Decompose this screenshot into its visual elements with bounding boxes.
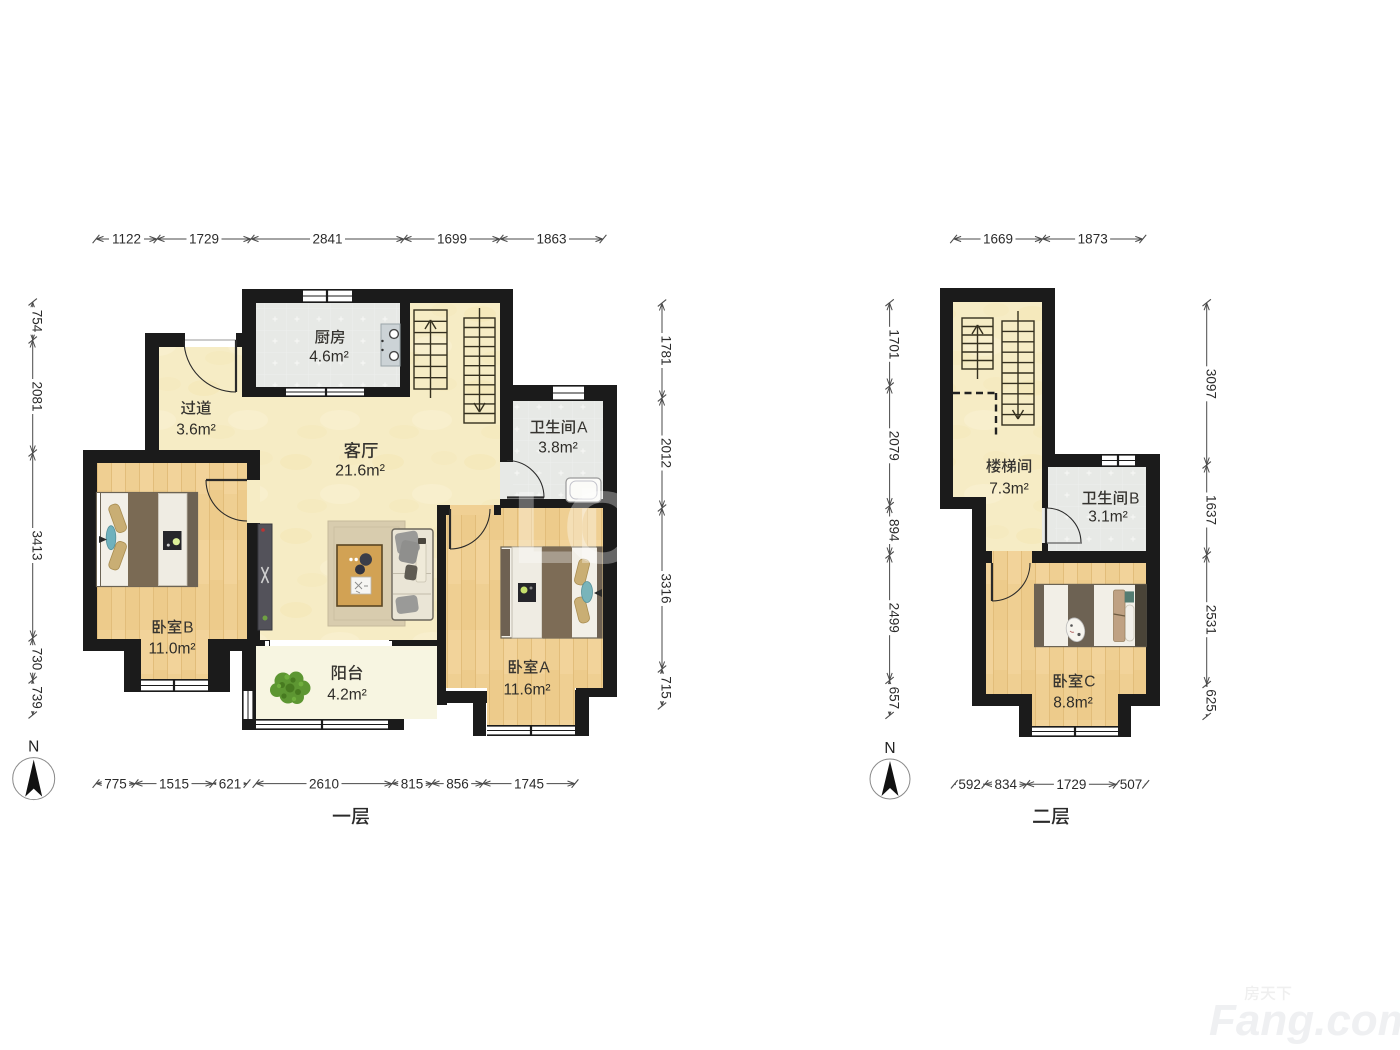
svg-text:C: C [1084, 674, 1095, 691]
svg-text:Fang.com: Fang.com [1209, 996, 1400, 1045]
svg-text:1863: 1863 [536, 232, 566, 247]
svg-text:1873: 1873 [1078, 232, 1108, 247]
svg-text:B: B [183, 620, 193, 637]
svg-text:657: 657 [886, 687, 901, 710]
svg-text:592: 592 [958, 777, 981, 792]
svg-text:621: 621 [219, 776, 242, 791]
svg-text:3316: 3316 [659, 573, 674, 603]
svg-text:21.6m²: 21.6m² [335, 462, 385, 479]
svg-text:1745: 1745 [514, 776, 544, 791]
svg-text:3.6m²: 3.6m² [176, 422, 216, 439]
svg-text:A: A [539, 660, 550, 677]
svg-text:1701: 1701 [886, 329, 901, 359]
svg-text:C: C [563, 470, 637, 585]
svg-text:507: 507 [1120, 777, 1143, 792]
svg-text:739: 739 [29, 686, 44, 709]
svg-text:11.0m²: 11.0m² [148, 641, 195, 658]
svg-text:3097: 3097 [1203, 369, 1218, 399]
svg-text:754: 754 [29, 310, 44, 333]
svg-text:11.6m²: 11.6m² [503, 682, 550, 699]
svg-text:1637: 1637 [1203, 495, 1218, 525]
svg-text:1122: 1122 [112, 232, 141, 247]
svg-text:1781: 1781 [659, 335, 674, 365]
svg-text:2610: 2610 [309, 776, 339, 791]
svg-text:N: N [28, 739, 39, 756]
svg-text:715: 715 [659, 676, 674, 699]
svg-text:1515: 1515 [159, 776, 189, 791]
svg-text:3.8m²: 3.8m² [538, 440, 578, 457]
svg-text:4.6m²: 4.6m² [309, 349, 349, 366]
svg-text:2499: 2499 [886, 603, 901, 633]
svg-text:1669: 1669 [983, 232, 1013, 247]
svg-text:775: 775 [104, 776, 127, 791]
svg-text:1729: 1729 [1056, 777, 1086, 792]
svg-text:625: 625 [1203, 689, 1218, 712]
svg-text:N: N [884, 740, 895, 757]
svg-text:894: 894 [886, 519, 901, 542]
svg-text:2012: 2012 [659, 438, 674, 468]
svg-text:815: 815 [401, 776, 424, 791]
svg-text:856: 856 [446, 776, 469, 791]
svg-text:7.3m²: 7.3m² [989, 481, 1029, 498]
svg-text:730: 730 [29, 648, 44, 671]
svg-text:1729: 1729 [189, 232, 219, 247]
svg-text:2531: 2531 [1203, 605, 1218, 635]
svg-text:8.8m²: 8.8m² [1053, 695, 1093, 712]
svg-text:3.1m²: 3.1m² [1088, 509, 1128, 526]
svg-text:4.2m²: 4.2m² [327, 687, 367, 704]
svg-text:1699: 1699 [437, 232, 467, 247]
svg-text:2079: 2079 [886, 431, 901, 461]
svg-text:B: B [1129, 491, 1139, 508]
svg-text:3413: 3413 [29, 530, 44, 560]
svg-text:834: 834 [995, 777, 1018, 792]
svg-text:2081: 2081 [29, 381, 44, 411]
svg-text:A: A [577, 420, 588, 437]
svg-text:2841: 2841 [312, 232, 342, 247]
